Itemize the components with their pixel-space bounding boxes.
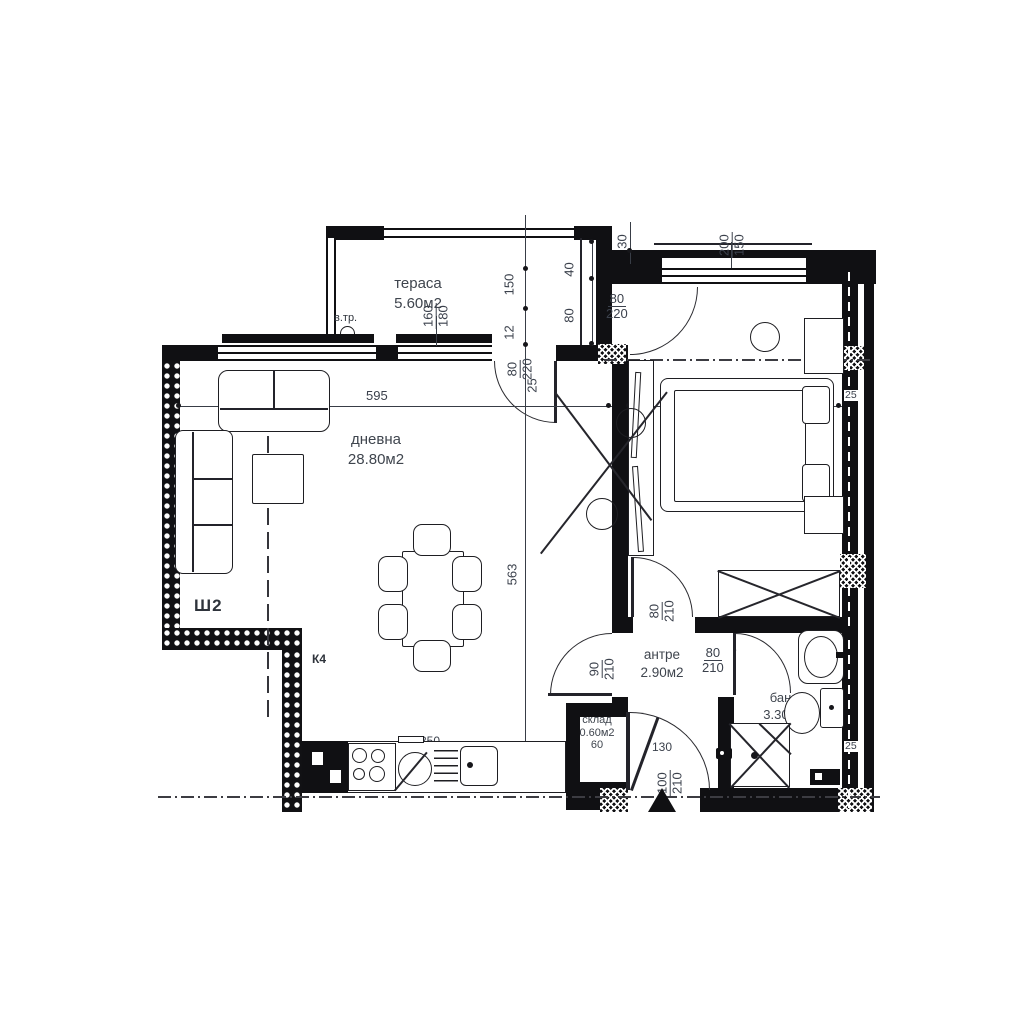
dim-30: 30 xyxy=(612,226,632,256)
stove-burner xyxy=(352,748,367,763)
dim-dot xyxy=(589,276,594,281)
drainpipe-label: в.тр. xyxy=(334,312,357,324)
sofa-corner xyxy=(175,430,233,574)
coffee-table xyxy=(252,454,304,504)
room-area: 28.80м2 xyxy=(320,450,432,470)
bed-blanket xyxy=(674,390,806,502)
chair xyxy=(413,640,451,672)
terrace-railing-left xyxy=(326,238,336,342)
section-line-sh2 xyxy=(267,388,269,718)
sink-drainboard xyxy=(434,750,458,786)
chair xyxy=(378,604,408,640)
door-arc-entrance xyxy=(630,712,710,790)
dim-595: 595 xyxy=(366,389,388,402)
room-area: 0.60м2 xyxy=(568,727,626,740)
hob-control xyxy=(398,736,424,743)
dim-40: 40 xyxy=(558,252,580,286)
column xyxy=(840,554,866,588)
dim-563: 563 xyxy=(500,552,524,596)
chair xyxy=(378,556,408,592)
sofa-corner-cushion-line xyxy=(192,524,232,526)
section-line-vertical xyxy=(525,215,526,771)
nightstand xyxy=(804,496,844,534)
kitchen-corner-notch xyxy=(330,770,341,783)
dim-window-bedroom: 200150 xyxy=(706,220,756,270)
label-terrace: тераса 5.60м2 xyxy=(368,274,468,313)
dim-door-bath: 80210 xyxy=(700,644,726,674)
kitchen-corner-unit xyxy=(302,741,348,793)
door-arc-living-hall xyxy=(550,633,612,695)
axis-dashed-right-wall-lower xyxy=(848,640,850,808)
room-name: антре xyxy=(626,646,698,664)
label-living: дневна 28.80м2 xyxy=(320,430,432,469)
chair xyxy=(452,604,482,640)
floor-plan: в.тр. xyxy=(0,0,1024,1024)
dim-25-bedroom: 25 xyxy=(844,390,858,401)
stove-burner xyxy=(371,749,385,763)
bath-sink-bowl xyxy=(804,636,838,678)
pillow xyxy=(802,386,830,424)
column xyxy=(598,344,626,364)
kitchen-corner-notch xyxy=(312,752,323,765)
door-arc-bath xyxy=(735,633,791,693)
section-mark-sh2: Ш2 xyxy=(194,596,223,616)
sink-drain-dot xyxy=(467,762,473,768)
wall-outer-right-strip xyxy=(864,284,874,812)
chair xyxy=(452,556,482,592)
stove-burner xyxy=(353,768,365,780)
dim-dot xyxy=(589,341,594,346)
wall-bedroom-bottom-stub xyxy=(628,617,633,633)
dim-line-40-80 xyxy=(592,240,593,346)
dim-150: 150 xyxy=(498,262,520,306)
dim-dot xyxy=(606,403,611,408)
room-name: дневна xyxy=(320,430,432,450)
room-area: 2.90м2 xyxy=(626,664,698,682)
door-arc-bedroom-hall xyxy=(633,557,693,617)
label-hall: антре 2.90м2 xyxy=(626,646,698,681)
room-name: тераса xyxy=(368,274,468,294)
room-area: 5.60м2 xyxy=(368,294,468,314)
shower-drain-dot xyxy=(751,752,758,759)
room-name: склад xyxy=(568,714,626,727)
door-leaf-bedroom-hall xyxy=(631,557,634,617)
window-living-1 xyxy=(218,345,376,361)
wardrobe-mirror xyxy=(586,498,618,530)
dim-door-terrace-offset: 25 xyxy=(522,372,542,398)
window-bedroom xyxy=(662,268,806,284)
door-leaf-living-hall xyxy=(548,693,612,696)
dim-dot xyxy=(523,306,528,311)
column-mark-k4: К4 xyxy=(312,652,326,666)
door-arc-bedroom-entry xyxy=(630,287,698,355)
dim-door-bedroom-top: 80220 xyxy=(604,290,630,320)
column xyxy=(600,788,628,812)
kitchen-sink-basin xyxy=(460,746,498,786)
vent-symbol-square xyxy=(815,773,822,780)
window-living-2 xyxy=(398,345,492,361)
entrance-marker-triangle xyxy=(648,788,676,812)
wall-window-pier xyxy=(376,345,398,361)
storage-depth: 60 xyxy=(568,739,626,752)
door-leaf-bath xyxy=(733,633,736,695)
stove-burner xyxy=(369,766,385,782)
nightstand xyxy=(804,318,844,374)
dim-dot xyxy=(836,403,841,408)
wall-living-top-left xyxy=(162,345,220,361)
ceiling-lamp xyxy=(750,322,780,352)
dim-dot xyxy=(589,239,594,244)
floor-siphon-dot xyxy=(720,751,724,755)
terrace-inner-line xyxy=(580,238,582,345)
axis-dashed-right-wall xyxy=(848,272,850,628)
dim-80: 80 xyxy=(558,296,580,334)
sofa-corner-cushion-line xyxy=(192,478,232,480)
floor-siphon-symbol xyxy=(716,748,732,759)
wall-step-bottom-insulated xyxy=(162,628,302,650)
door-leaf-entrance xyxy=(626,712,630,790)
wall-bath-right xyxy=(842,632,858,812)
wall-step-vertical-insulated xyxy=(282,650,302,812)
column xyxy=(838,788,872,812)
dim-dot xyxy=(176,403,181,408)
window-sill-1 xyxy=(222,334,374,343)
bath-sink-faucet xyxy=(836,652,846,658)
sofa-corner-back-line xyxy=(192,432,194,572)
dim-25-bath: 25 xyxy=(844,741,858,752)
axis-line-horizontal-bottom xyxy=(158,796,880,798)
dim-12: 12 xyxy=(498,318,520,346)
label-storage: склад 0.60м2 60 xyxy=(568,714,626,752)
wall-living-bedroom xyxy=(612,345,628,633)
dim-dot xyxy=(523,266,528,271)
sofa-divider-line xyxy=(273,370,275,410)
chair xyxy=(413,524,451,556)
wall-bath-bottom xyxy=(700,788,842,812)
toilet-tank-dot xyxy=(829,705,834,710)
wall-bedroom-top-right-pier xyxy=(806,250,876,284)
